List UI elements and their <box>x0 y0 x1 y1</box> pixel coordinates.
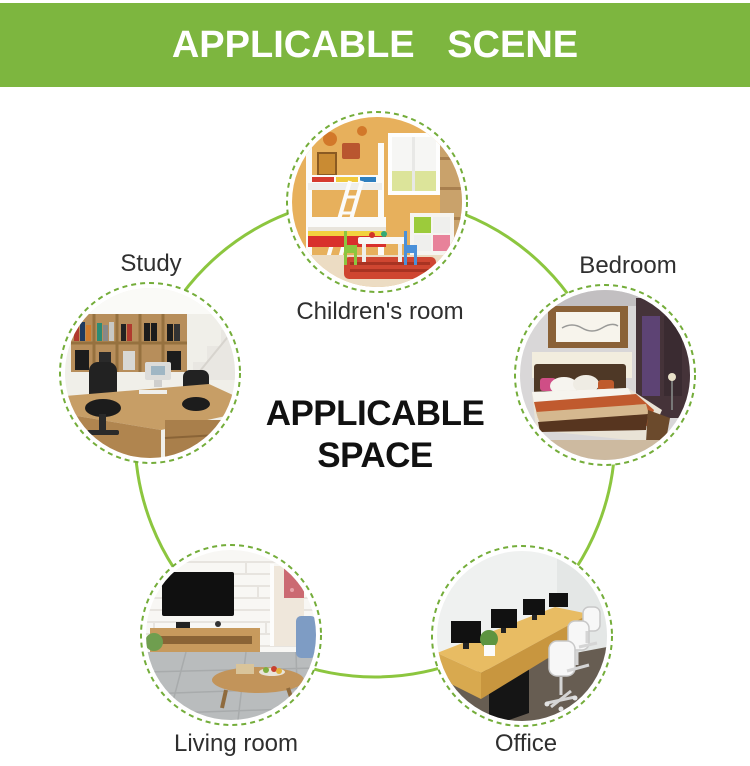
label-children-room: Children's room <box>296 298 463 326</box>
label-living-room: Living room <box>174 730 298 758</box>
bedroom-photo-icon <box>520 290 690 460</box>
study-photo-icon <box>65 288 235 458</box>
label-bedroom: Bedroom <box>579 252 676 280</box>
center-title: APPLICABLE SPACE <box>266 393 485 477</box>
living-room-photo-icon <box>146 550 316 720</box>
office-photo-icon <box>437 551 607 721</box>
label-office: Office <box>495 730 557 758</box>
living-room-photo <box>146 550 316 720</box>
study-photo <box>65 288 235 458</box>
bedroom-photo <box>520 290 690 460</box>
office-photo <box>437 551 607 721</box>
center-title-line2: SPACE <box>266 435 485 477</box>
children-room-photo-icon <box>292 117 462 287</box>
center-title-line1: APPLICABLE <box>266 393 485 435</box>
label-study: Study <box>120 250 181 278</box>
applicable-scene-infographic: APPLICABLE SCENE <box>0 0 750 766</box>
children-room-photo <box>292 117 462 287</box>
